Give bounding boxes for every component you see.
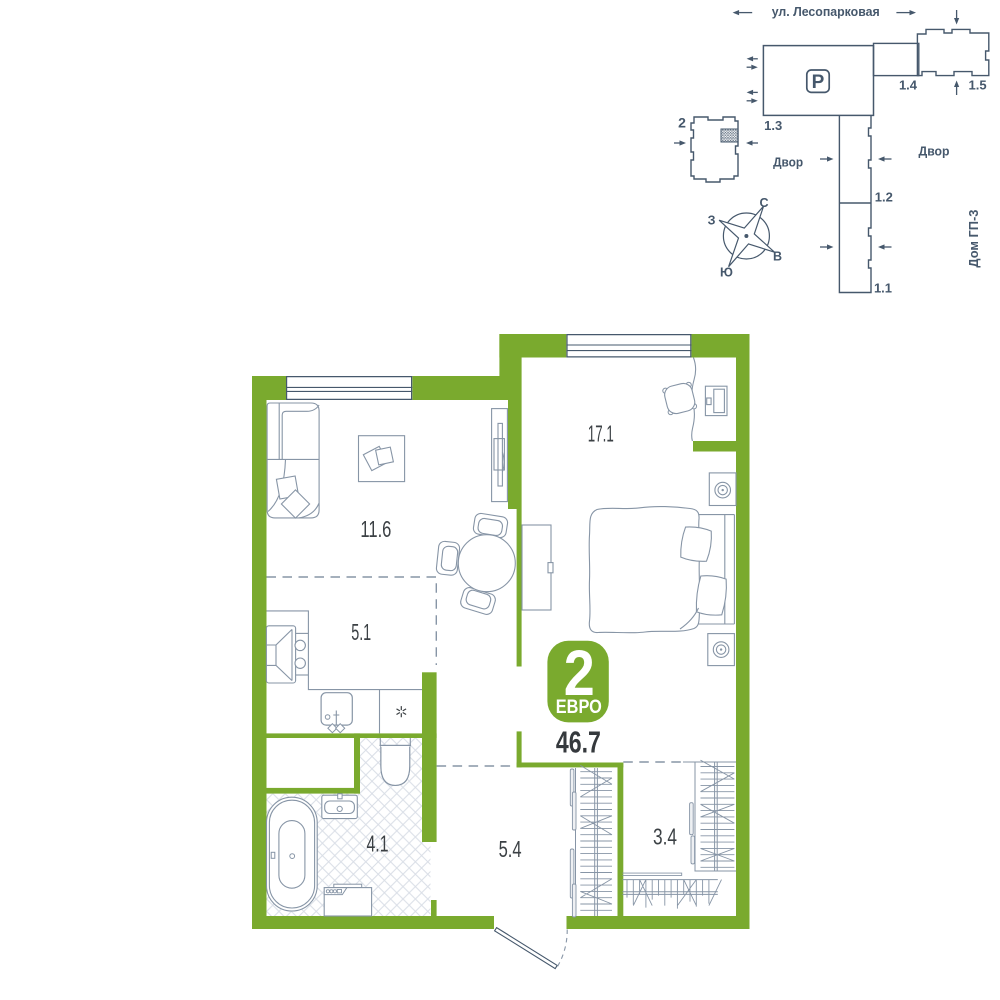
svg-text:2: 2 bbox=[678, 115, 686, 131]
svg-text:17.1: 17.1 bbox=[588, 421, 614, 447]
svg-text:11.6: 11.6 bbox=[360, 516, 391, 542]
svg-text:Р: Р bbox=[812, 72, 825, 93]
svg-text:Двор: Двор bbox=[773, 155, 803, 170]
svg-text:Двор: Двор bbox=[919, 144, 950, 159]
svg-text:З: З bbox=[708, 213, 716, 227]
svg-text:3.4: 3.4 bbox=[653, 823, 677, 849]
svg-text:ул. Лесопарковая: ул. Лесопарковая bbox=[772, 4, 880, 19]
svg-text:С: С bbox=[759, 196, 768, 210]
svg-text:5.1: 5.1 bbox=[351, 619, 371, 645]
svg-text:1.1: 1.1 bbox=[874, 281, 892, 296]
svg-text:Дом ГП-3: Дом ГП-3 bbox=[966, 210, 981, 268]
svg-text:46.7: 46.7 bbox=[556, 726, 601, 760]
svg-text:5.4: 5.4 bbox=[499, 836, 522, 862]
svg-text:ЕВРО: ЕВРО bbox=[556, 696, 602, 718]
svg-text:1.5: 1.5 bbox=[969, 77, 987, 92]
svg-text:1.2: 1.2 bbox=[875, 190, 893, 205]
svg-text:В: В bbox=[773, 249, 782, 263]
svg-text:4.1: 4.1 bbox=[367, 831, 389, 857]
svg-text:Ю: Ю bbox=[720, 265, 733, 279]
svg-text:1.3: 1.3 bbox=[764, 118, 782, 133]
svg-text:1.4: 1.4 bbox=[899, 77, 918, 92]
